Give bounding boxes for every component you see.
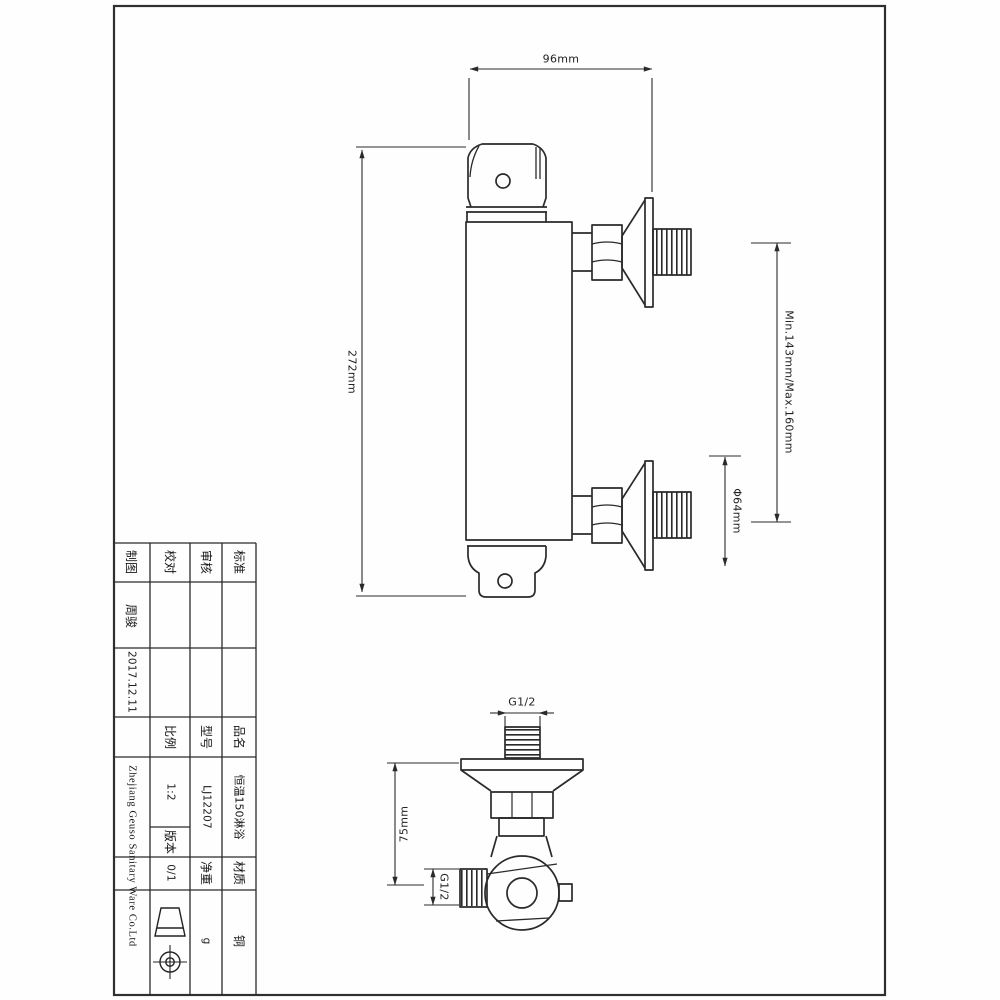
dim-height-label: 272mm bbox=[347, 350, 358, 394]
titleblock-scale-value: 1:2 bbox=[165, 783, 176, 801]
titleblock-material-label: 材质 bbox=[233, 861, 245, 885]
dim-pipe-spacing-label: Min.143mm/Max.160mm bbox=[784, 310, 795, 454]
dim-flange-diameter-label: Φ64mm bbox=[732, 488, 743, 534]
titleblock-drafted-label: 制图 bbox=[125, 550, 137, 574]
titleblock-weight-unit: g bbox=[201, 938, 212, 945]
titleblock-drafter-name: 周骏 bbox=[125, 604, 137, 628]
top-thread-label: G1/2 bbox=[508, 697, 535, 708]
dim-top-thread bbox=[490, 713, 554, 727]
sheet-frame bbox=[114, 6, 885, 995]
first-angle-projection-icon bbox=[153, 908, 187, 979]
titleblock-material-value: 铜 bbox=[233, 935, 245, 947]
titleblock-company-name: Zhejiang Geuso Sanitary Ware Co.Ltd bbox=[126, 765, 137, 947]
side-knob bbox=[559, 884, 572, 901]
wall-flange bbox=[645, 461, 653, 570]
titleblock-product-label: 品名 bbox=[233, 725, 245, 749]
bottom-handle-screw-hole bbox=[498, 574, 512, 588]
top-handle bbox=[466, 144, 547, 222]
titleblock-version-value: 0/1 bbox=[165, 864, 176, 882]
dim-width-96 bbox=[469, 69, 652, 192]
side-view-valve bbox=[460, 727, 583, 930]
titleblock-scale-label: 比例 bbox=[164, 725, 176, 749]
side-outlet-thread bbox=[460, 869, 487, 907]
bottom-handle bbox=[467, 546, 546, 597]
drawing-linework bbox=[0, 0, 1000, 1000]
hex-nut bbox=[592, 225, 622, 280]
titleblock-model-label: 型号 bbox=[200, 725, 212, 749]
front-view-valve-body bbox=[466, 144, 691, 597]
technical-drawing-sheet: 96mm 272mm Min.143mm/Max.160mm Φ64mm G1/… bbox=[0, 0, 1000, 1000]
top-handle-screw-hole bbox=[496, 174, 510, 188]
upper-inlet-connector bbox=[572, 198, 691, 307]
titleblock-audited-label: 审核 bbox=[200, 550, 212, 574]
top-threaded-pipe bbox=[505, 727, 540, 758]
wall-flange bbox=[645, 198, 653, 307]
valve-neck bbox=[499, 818, 544, 836]
valve-cap bbox=[507, 878, 537, 908]
dim-width-label: 96mm bbox=[543, 54, 580, 65]
side-thread-label: G1/2 bbox=[439, 873, 450, 900]
titleblock-model-value: LJ12207 bbox=[201, 785, 212, 829]
dim-depth-label: 75mm bbox=[399, 806, 410, 843]
valve-body bbox=[466, 222, 572, 540]
titleblock-date: 2017.12.11 bbox=[126, 651, 137, 713]
titleblock-product-name: 恒温150淋浴 bbox=[234, 775, 245, 840]
dimension-lines bbox=[356, 69, 791, 905]
hex-nut bbox=[592, 488, 622, 543]
lower-inlet-connector bbox=[572, 461, 691, 570]
titleblock-version-label: 版本 bbox=[164, 830, 176, 854]
hex-nut bbox=[491, 792, 553, 818]
dim-height-272 bbox=[356, 147, 466, 596]
titleblock-weight-label: 净重 bbox=[200, 861, 212, 885]
wall-flange bbox=[461, 759, 583, 770]
titleblock-standard-label: 标准 bbox=[233, 550, 245, 574]
titleblock-checked-label: 校对 bbox=[164, 550, 176, 574]
